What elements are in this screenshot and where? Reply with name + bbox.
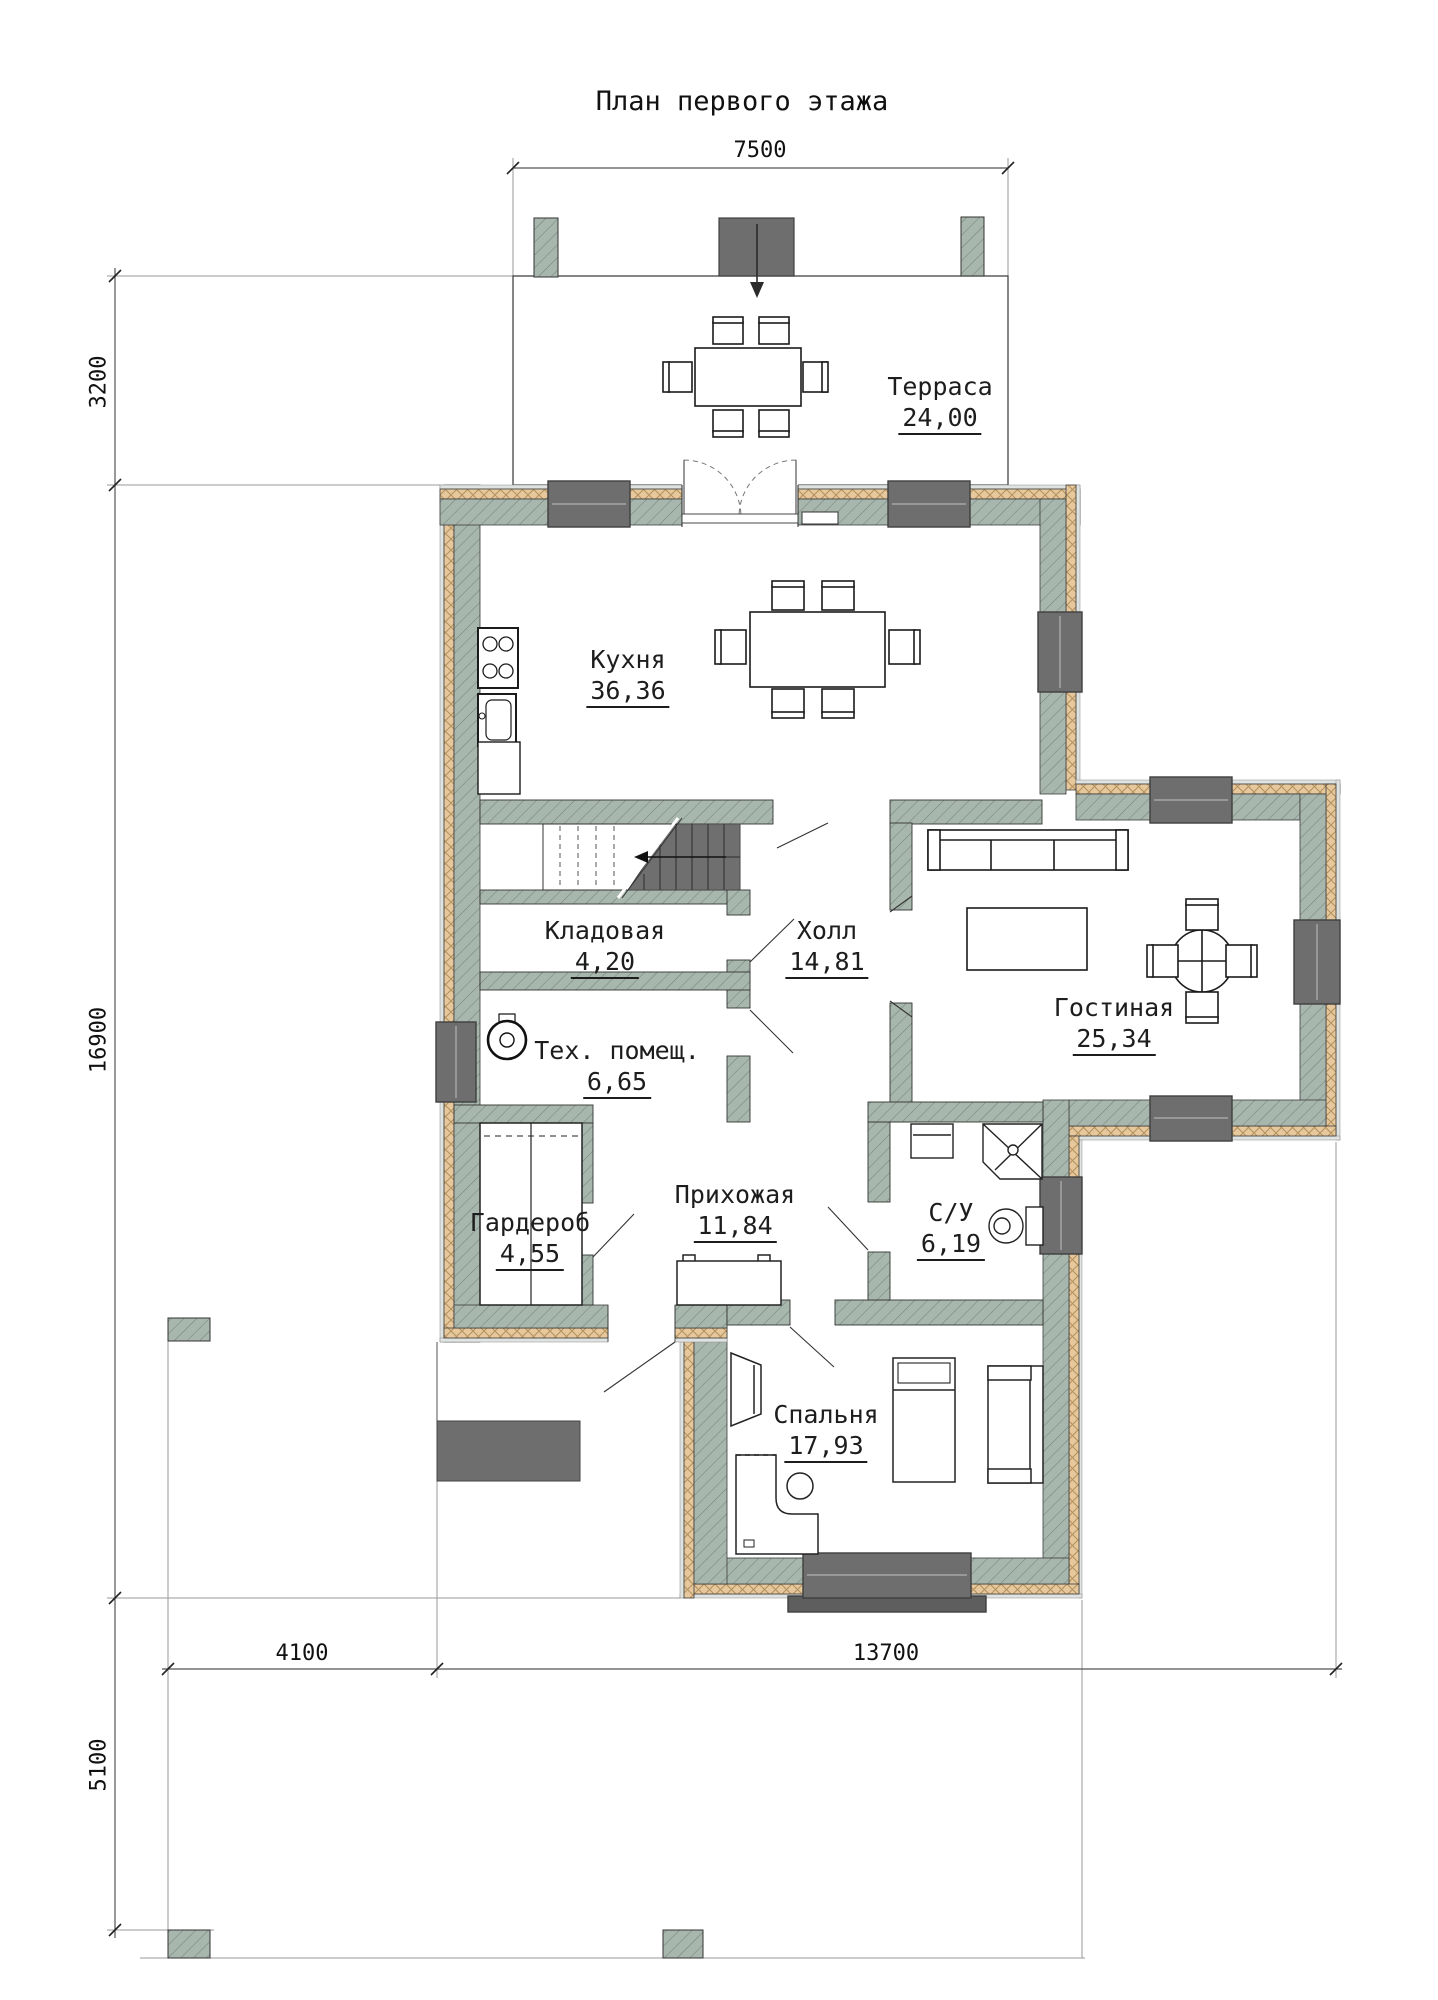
bedroom-sofa — [988, 1366, 1043, 1483]
washing-machine — [911, 1124, 953, 1158]
room-name: Гардероб — [470, 1208, 590, 1239]
room-label-wc: С/У 6,19 — [917, 1198, 985, 1261]
toilet-tank — [1026, 1207, 1043, 1245]
desk — [736, 1455, 818, 1554]
room-area: 14,81 — [785, 947, 868, 980]
entrance-porch — [437, 1342, 580, 1481]
page-title: План первого этажа — [596, 86, 889, 117]
room-label-wardrobe: Гардероб 4,55 — [470, 1208, 590, 1271]
dim-left-16900: 16900 — [87, 1007, 112, 1073]
room-area: 6,19 — [917, 1229, 985, 1262]
dim-bottom-4100: 4100 — [276, 1641, 329, 1666]
stove — [478, 628, 518, 688]
hallway-console — [677, 1255, 781, 1305]
floor-plan-page: План первого этажа 7500 3200 16900 5100 … — [0, 0, 1438, 2000]
dim-left-5100: 5100 — [87, 1739, 112, 1792]
floor-plan-drawing — [0, 0, 1438, 2000]
room-label-bedroom: Спальня 17,93 — [773, 1400, 878, 1463]
room-label-pantry: Кладовая 4,20 — [545, 916, 665, 979]
room-name: С/У — [917, 1198, 985, 1229]
room-area: 17,93 — [784, 1431, 867, 1464]
room-name: Тех. помещ. — [534, 1036, 700, 1067]
room-name: Спальня — [773, 1400, 878, 1431]
stairs — [543, 818, 740, 898]
tv-unit — [731, 1353, 761, 1426]
room-name: Терраса — [887, 372, 992, 403]
terrace-table — [695, 348, 801, 406]
room-area: 4,55 — [496, 1239, 564, 1272]
room-area: 36,36 — [586, 676, 669, 709]
dim-top-7500: 7500 — [734, 138, 787, 163]
porch-columns — [168, 1318, 703, 1958]
room-area: 24,00 — [898, 403, 981, 436]
room-area: 6,65 — [583, 1067, 651, 1100]
coffee-table — [967, 908, 1087, 970]
room-name: Прихожая — [675, 1180, 795, 1211]
room-label-terrace: Терраса 24,00 — [887, 372, 992, 435]
dim-bottom-13700: 13700 — [853, 1641, 919, 1666]
room-label-tech: Тех. помещ. 6,65 — [534, 1036, 700, 1099]
room-name: Гостиная — [1054, 993, 1174, 1024]
dim-left-3200: 3200 — [87, 356, 112, 409]
room-label-hallway: Прихожая 11,84 — [675, 1180, 795, 1243]
boiler — [488, 1014, 526, 1059]
kitchen-furniture — [478, 581, 920, 794]
dining-table — [750, 612, 885, 687]
room-area: 4,20 — [571, 947, 639, 980]
room-label-living: Гостиная 25,34 — [1054, 993, 1174, 1056]
room-area: 11,84 — [693, 1211, 776, 1244]
room-name: Холл — [785, 916, 868, 947]
room-name: Кухня — [586, 645, 669, 676]
desk-chair — [787, 1473, 813, 1499]
sofa — [928, 830, 1128, 870]
room-label-kitchen: Кухня 36,36 — [586, 645, 669, 708]
kitchen-cabinet — [478, 742, 520, 794]
room-label-hall: Холл 14,81 — [785, 916, 868, 979]
room-name: Кладовая — [545, 916, 665, 947]
room-area: 25,34 — [1072, 1024, 1155, 1057]
